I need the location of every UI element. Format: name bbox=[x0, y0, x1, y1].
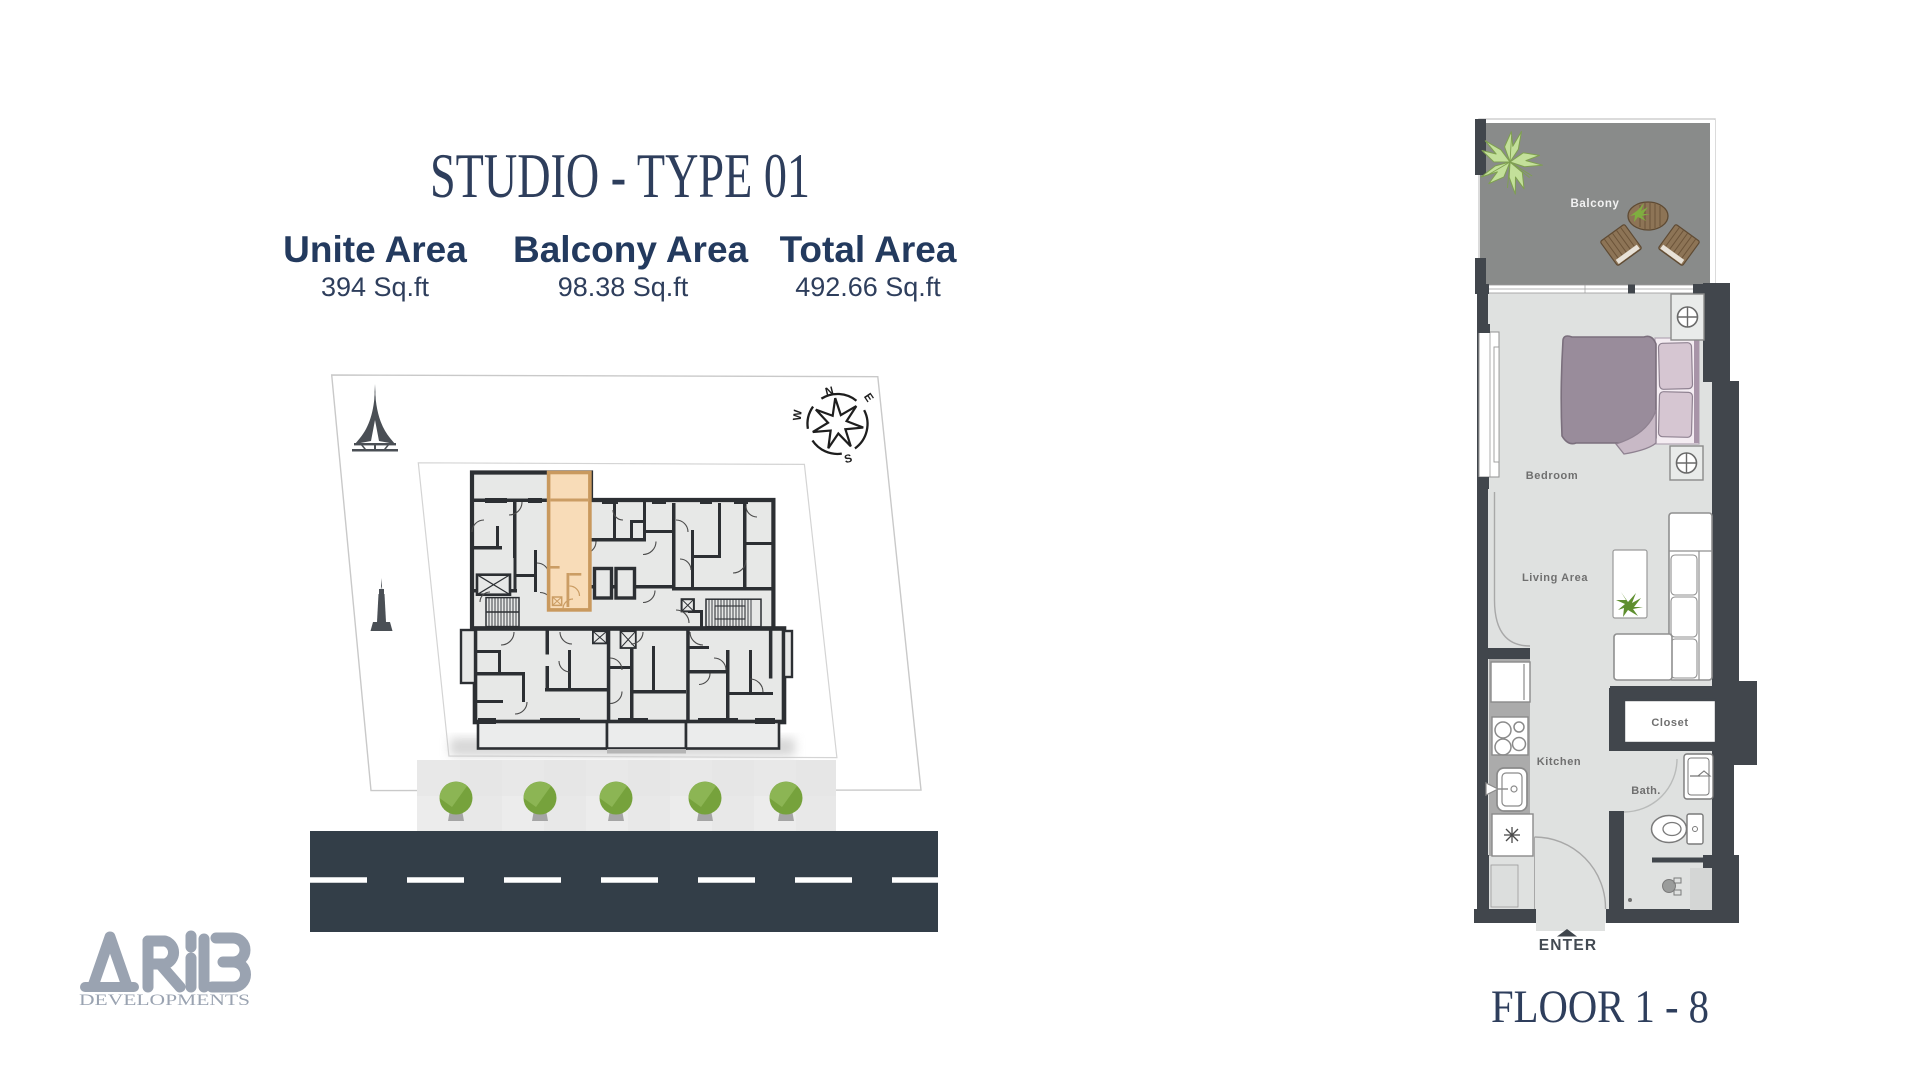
svg-text:Living Area: Living Area bbox=[1522, 572, 1588, 584]
svg-text:Bedroom: Bedroom bbox=[1526, 470, 1578, 482]
svg-text:FLOOR 1 - 8: FLOOR 1 - 8 bbox=[1491, 981, 1709, 1033]
svg-text:ENTER: ENTER bbox=[1539, 937, 1598, 954]
svg-text:DEVELOPMENTS: DEVELOPMENTS bbox=[79, 992, 250, 1009]
svg-text:STUDIO - TYPE 01: STUDIO - TYPE 01 bbox=[430, 140, 810, 211]
svg-text:W: W bbox=[792, 409, 805, 421]
svg-text:Balcony: Balcony bbox=[1571, 198, 1620, 210]
svg-text:Kitchen: Kitchen bbox=[1537, 756, 1582, 768]
svg-text:Closet: Closet bbox=[1651, 717, 1688, 729]
svg-text:Bath.: Bath. bbox=[1631, 785, 1661, 797]
